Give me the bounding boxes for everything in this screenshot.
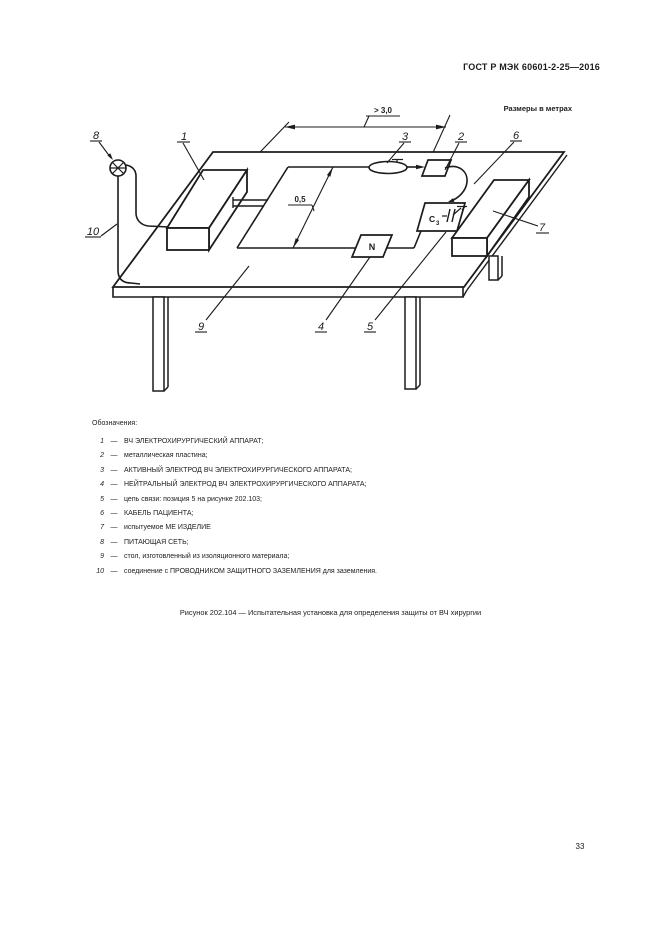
legend-item-number: 1 bbox=[92, 437, 104, 446]
legend-item: 5 — цепь связи: позиция 5 на рисунке 202… bbox=[92, 495, 592, 509]
figure-diagram: Размеры в метрах bbox=[0, 0, 661, 410]
legend-item-text: ПИТАЮЩАЯ СЕТЬ; bbox=[124, 538, 592, 547]
legend-item-number: 3 bbox=[92, 466, 104, 475]
legend-item-separator: — bbox=[104, 437, 124, 446]
callout-7: 7 bbox=[539, 222, 546, 234]
legend-item: 3 — АКТИВНЫЙ ЭЛЕКТРОД ВЧ ЭЛЕКТРОХИРУРГИЧ… bbox=[92, 466, 592, 480]
legend-item-text: испытуемое МЕ ИЗДЕЛИЕ bbox=[124, 523, 592, 532]
legend-item: 9 — стол, изготовленный из изоляционного… bbox=[92, 552, 592, 566]
legend-item-number: 9 bbox=[92, 552, 104, 561]
legend-item-separator: — bbox=[104, 538, 124, 547]
callout-5: 5 bbox=[367, 321, 374, 333]
legend-item-number: 8 bbox=[92, 538, 104, 547]
legend-item-separator: — bbox=[104, 567, 124, 576]
legend-title: Обозначения: bbox=[92, 419, 592, 428]
mains-supply-symbol bbox=[110, 160, 126, 176]
legend-item: 2 — металлическая пластина; bbox=[92, 451, 592, 465]
legend-item-separator: — bbox=[104, 451, 124, 460]
document-page: ГОСТ Р МЭК 60601-2-25—2016 Размеры в мет… bbox=[0, 0, 661, 935]
legend-item: 4 — НЕЙТРАЛЬНЫЙ ЭЛЕКТРОД ВЧ ЭЛЕКТРОХИРУР… bbox=[92, 480, 592, 494]
callout-6: 6 bbox=[513, 130, 520, 142]
dimension-cable-length: > 3,0 bbox=[285, 106, 446, 129]
legend-item-text: металлическая пластина; bbox=[124, 451, 592, 460]
page-number: 33 bbox=[560, 842, 600, 851]
legend-item-number: 5 bbox=[92, 495, 104, 504]
capacitor-label: C bbox=[429, 214, 435, 224]
legend-item-text: стол, изготовленный из изоляционного мат… bbox=[124, 552, 592, 561]
legend-item-text: цепь связи: позиция 5 на рисунке 202.103… bbox=[124, 495, 592, 504]
legend-item-number: 10 bbox=[92, 567, 104, 576]
table-leg bbox=[489, 256, 502, 280]
legend-item-number: 2 bbox=[92, 451, 104, 460]
figure-caption: Рисунок 202.104 — Испытательная установк… bbox=[0, 608, 661, 617]
legend-item: 1 — ВЧ ЭЛЕКТРОХИРУРГИЧЕСКИЙ АППАРАТ; bbox=[92, 437, 592, 451]
neutral-electrode-label: N bbox=[369, 242, 376, 252]
legend-item-number: 6 bbox=[92, 509, 104, 518]
units-note: Размеры в метрах bbox=[504, 104, 573, 113]
legend-item: 6 — КАБЕЛЬ ПАЦИЕНТА; bbox=[92, 509, 592, 523]
callout-8: 8 bbox=[93, 130, 100, 142]
table-leg bbox=[153, 297, 168, 391]
callout-2: 2 bbox=[457, 131, 464, 143]
legend-item: 8 — ПИТАЮЩАЯ СЕТЬ; bbox=[92, 538, 592, 552]
callout-1: 1 bbox=[181, 131, 187, 143]
legend-item: 10 — соединение с ПРОВОДНИКОМ ЗАЩИТНОГО … bbox=[92, 567, 592, 581]
legend-item-text: НЕЙТРАЛЬНЫЙ ЭЛЕКТРОД ВЧ ЭЛЕКТРОХИРУРГИЧЕ… bbox=[124, 480, 592, 489]
power-cord bbox=[126, 165, 169, 227]
callout-10: 10 bbox=[87, 226, 100, 238]
legend-item-text: КАБЕЛЬ ПАЦИЕНТА; bbox=[124, 509, 592, 518]
callout-9: 9 bbox=[198, 321, 204, 333]
legend-item-separator: — bbox=[104, 523, 124, 532]
legend-item-separator: — bbox=[104, 509, 124, 518]
dimension-cable-length-label: > 3,0 bbox=[374, 106, 393, 115]
legend-item-text: соединение с ПРОВОДНИКОМ ЗАЩИТНОГО ЗАЗЕМ… bbox=[124, 567, 592, 576]
dimension-loop-width-label: 0,5 bbox=[294, 195, 306, 204]
callout-3: 3 bbox=[402, 131, 409, 143]
legend-item-text: АКТИВНЫЙ ЭЛЕКТРОД ВЧ ЭЛЕКТРОХИРУРГИЧЕСКО… bbox=[124, 466, 592, 475]
legend-item: 7 — испытуемое МЕ ИЗДЕЛИЕ bbox=[92, 523, 592, 537]
legend-item-separator: — bbox=[104, 480, 124, 489]
legend-item-number: 4 bbox=[92, 480, 104, 489]
callout-4: 4 bbox=[318, 321, 324, 333]
legend-item-separator: — bbox=[104, 466, 124, 475]
legend: Обозначения: 1 — ВЧ ЭЛЕКТРОХИРУРГИЧЕСКИЙ… bbox=[92, 419, 592, 581]
legend-item-separator: — bbox=[104, 552, 124, 561]
table-leg bbox=[405, 297, 420, 389]
legend-item-separator: — bbox=[104, 495, 124, 504]
legend-item-text: ВЧ ЭЛЕКТРОХИРУРГИЧЕСКИЙ АППАРАТ; bbox=[124, 437, 592, 446]
legend-item-number: 7 bbox=[92, 523, 104, 532]
